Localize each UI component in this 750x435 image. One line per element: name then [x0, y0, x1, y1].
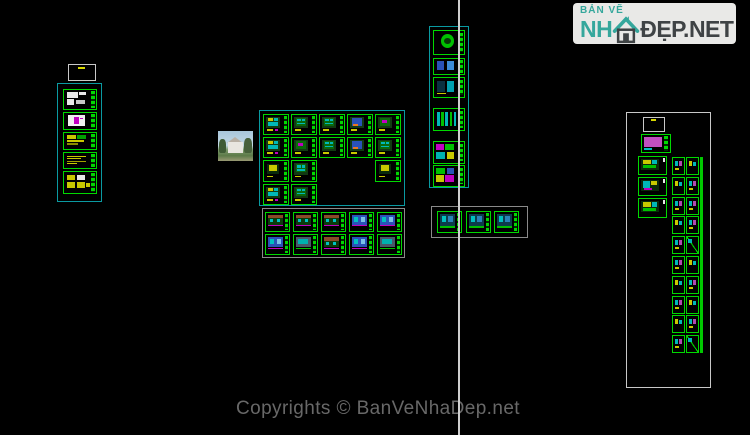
sheet-detailDiag[interactable] — [686, 335, 699, 353]
sheet-elevA[interactable] — [293, 212, 318, 232]
logo-main-row: NH ĐẸP.NET — [580, 14, 736, 42]
sheet-planB[interactable] — [291, 114, 317, 135]
logo-nha-text: NH — [580, 16, 612, 42]
sheet-detailB[interactable] — [672, 177, 685, 195]
sheet-detailA[interactable] — [686, 216, 699, 234]
photo-house-body — [228, 142, 243, 153]
sheet-planC[interactable] — [347, 137, 373, 158]
sheet-detailB[interactable] — [686, 157, 699, 175]
sheet-elevB[interactable] — [265, 234, 290, 255]
sheet-elevCyan[interactable] — [466, 211, 491, 233]
sheet-elevB[interactable] — [377, 212, 402, 232]
house-icon — [611, 14, 641, 44]
sheet-detailA[interactable] — [686, 177, 699, 195]
sheet-planY2[interactable] — [638, 177, 667, 196]
sheet-elevA[interactable] — [265, 212, 290, 232]
sheet-detailA[interactable] — [686, 315, 699, 333]
sheet-detailA[interactable] — [686, 197, 699, 215]
sheet-detailB[interactable] — [672, 216, 685, 234]
sheet-planE[interactable] — [291, 137, 317, 158]
sheet-elevA[interactable] — [321, 234, 346, 255]
sheet-elevC[interactable] — [377, 234, 402, 255]
sheet-planB[interactable] — [291, 160, 317, 182]
sheet-circleGreen[interactable] — [433, 30, 465, 55]
sheet-detailA[interactable] — [672, 197, 685, 215]
sheet-colorfulB[interactable] — [433, 165, 465, 187]
sheet-detailB[interactable] — [672, 315, 685, 333]
sheet-detailA[interactable] — [672, 256, 685, 274]
sheet-titleblock[interactable] — [68, 64, 96, 81]
sheet-planD[interactable] — [375, 160, 401, 182]
sheet-detailA[interactable] — [672, 296, 685, 314]
photo-tree-left — [219, 139, 226, 153]
sheet-elevC[interactable] — [293, 234, 318, 255]
sheet-detailA[interactable] — [672, 335, 685, 353]
sheet-titleblock[interactable] — [643, 117, 665, 132]
sheet-yellowLines[interactable] — [63, 152, 97, 169]
sheet-solidGreen[interactable] — [700, 157, 703, 353]
sheet-elevB[interactable] — [349, 212, 374, 232]
sheet-cyanDark[interactable] — [433, 77, 465, 98]
sheet-planE[interactable] — [375, 114, 401, 135]
sheet-detailB[interactable] — [686, 296, 699, 314]
sheet-planC[interactable] — [347, 114, 373, 135]
sheet-detailA[interactable] — [672, 236, 685, 254]
sheet-bars[interactable] — [433, 108, 465, 131]
sheet-detailA[interactable] — [672, 157, 685, 175]
sheet-blueWin[interactable] — [433, 58, 465, 75]
cad-viewport: BẢN VẼ NH ĐẸP.NET Copyrights © BanVeNhaD… — [0, 0, 750, 435]
sheet-planB[interactable] — [319, 137, 345, 158]
sheet-planY[interactable] — [638, 156, 667, 175]
sheet-detailB[interactable] — [686, 256, 699, 274]
crosshair-line — [458, 0, 460, 435]
sheet-yellowBlocks[interactable] — [63, 171, 97, 194]
sheet-detailA[interactable] — [686, 276, 699, 294]
sheet-planB[interactable] — [291, 184, 317, 205]
sheet-elevB[interactable] — [349, 234, 374, 255]
sheet-planA[interactable] — [263, 184, 289, 205]
cad-canvas[interactable] — [0, 0, 750, 435]
sheet-colorfulA[interactable] — [433, 141, 465, 164]
sheet-elevA[interactable] — [321, 212, 346, 232]
sheet-whiteBlocks[interactable] — [63, 89, 97, 110]
sheet-planA[interactable] — [263, 137, 289, 158]
copyright-watermark: Copyrights © BanVeNhaDep.net — [236, 398, 520, 420]
sheet-planB[interactable] — [375, 137, 401, 158]
sheet-detailDiag[interactable] — [686, 236, 699, 254]
sheet-planA[interactable] — [263, 114, 289, 135]
watermark-logo: BẢN VẼ NH ĐẸP.NET — [573, 3, 736, 44]
sheet-planB[interactable] — [319, 114, 345, 135]
sheet-elevCyan[interactable] — [494, 211, 519, 233]
logo-depnet-text: ĐẸP.NET — [640, 16, 733, 42]
photo-tree-right — [244, 138, 252, 153]
sheet-detailB[interactable] — [672, 276, 685, 294]
house-photo[interactable] — [218, 131, 253, 161]
sheet-hatchYellow[interactable] — [63, 132, 97, 150]
sheet-whiteMagenta[interactable] — [63, 112, 97, 130]
sheet-magentaFill[interactable] — [641, 134, 671, 153]
sheet-planD[interactable] — [263, 160, 289, 182]
sheet-planY[interactable] — [638, 198, 667, 218]
